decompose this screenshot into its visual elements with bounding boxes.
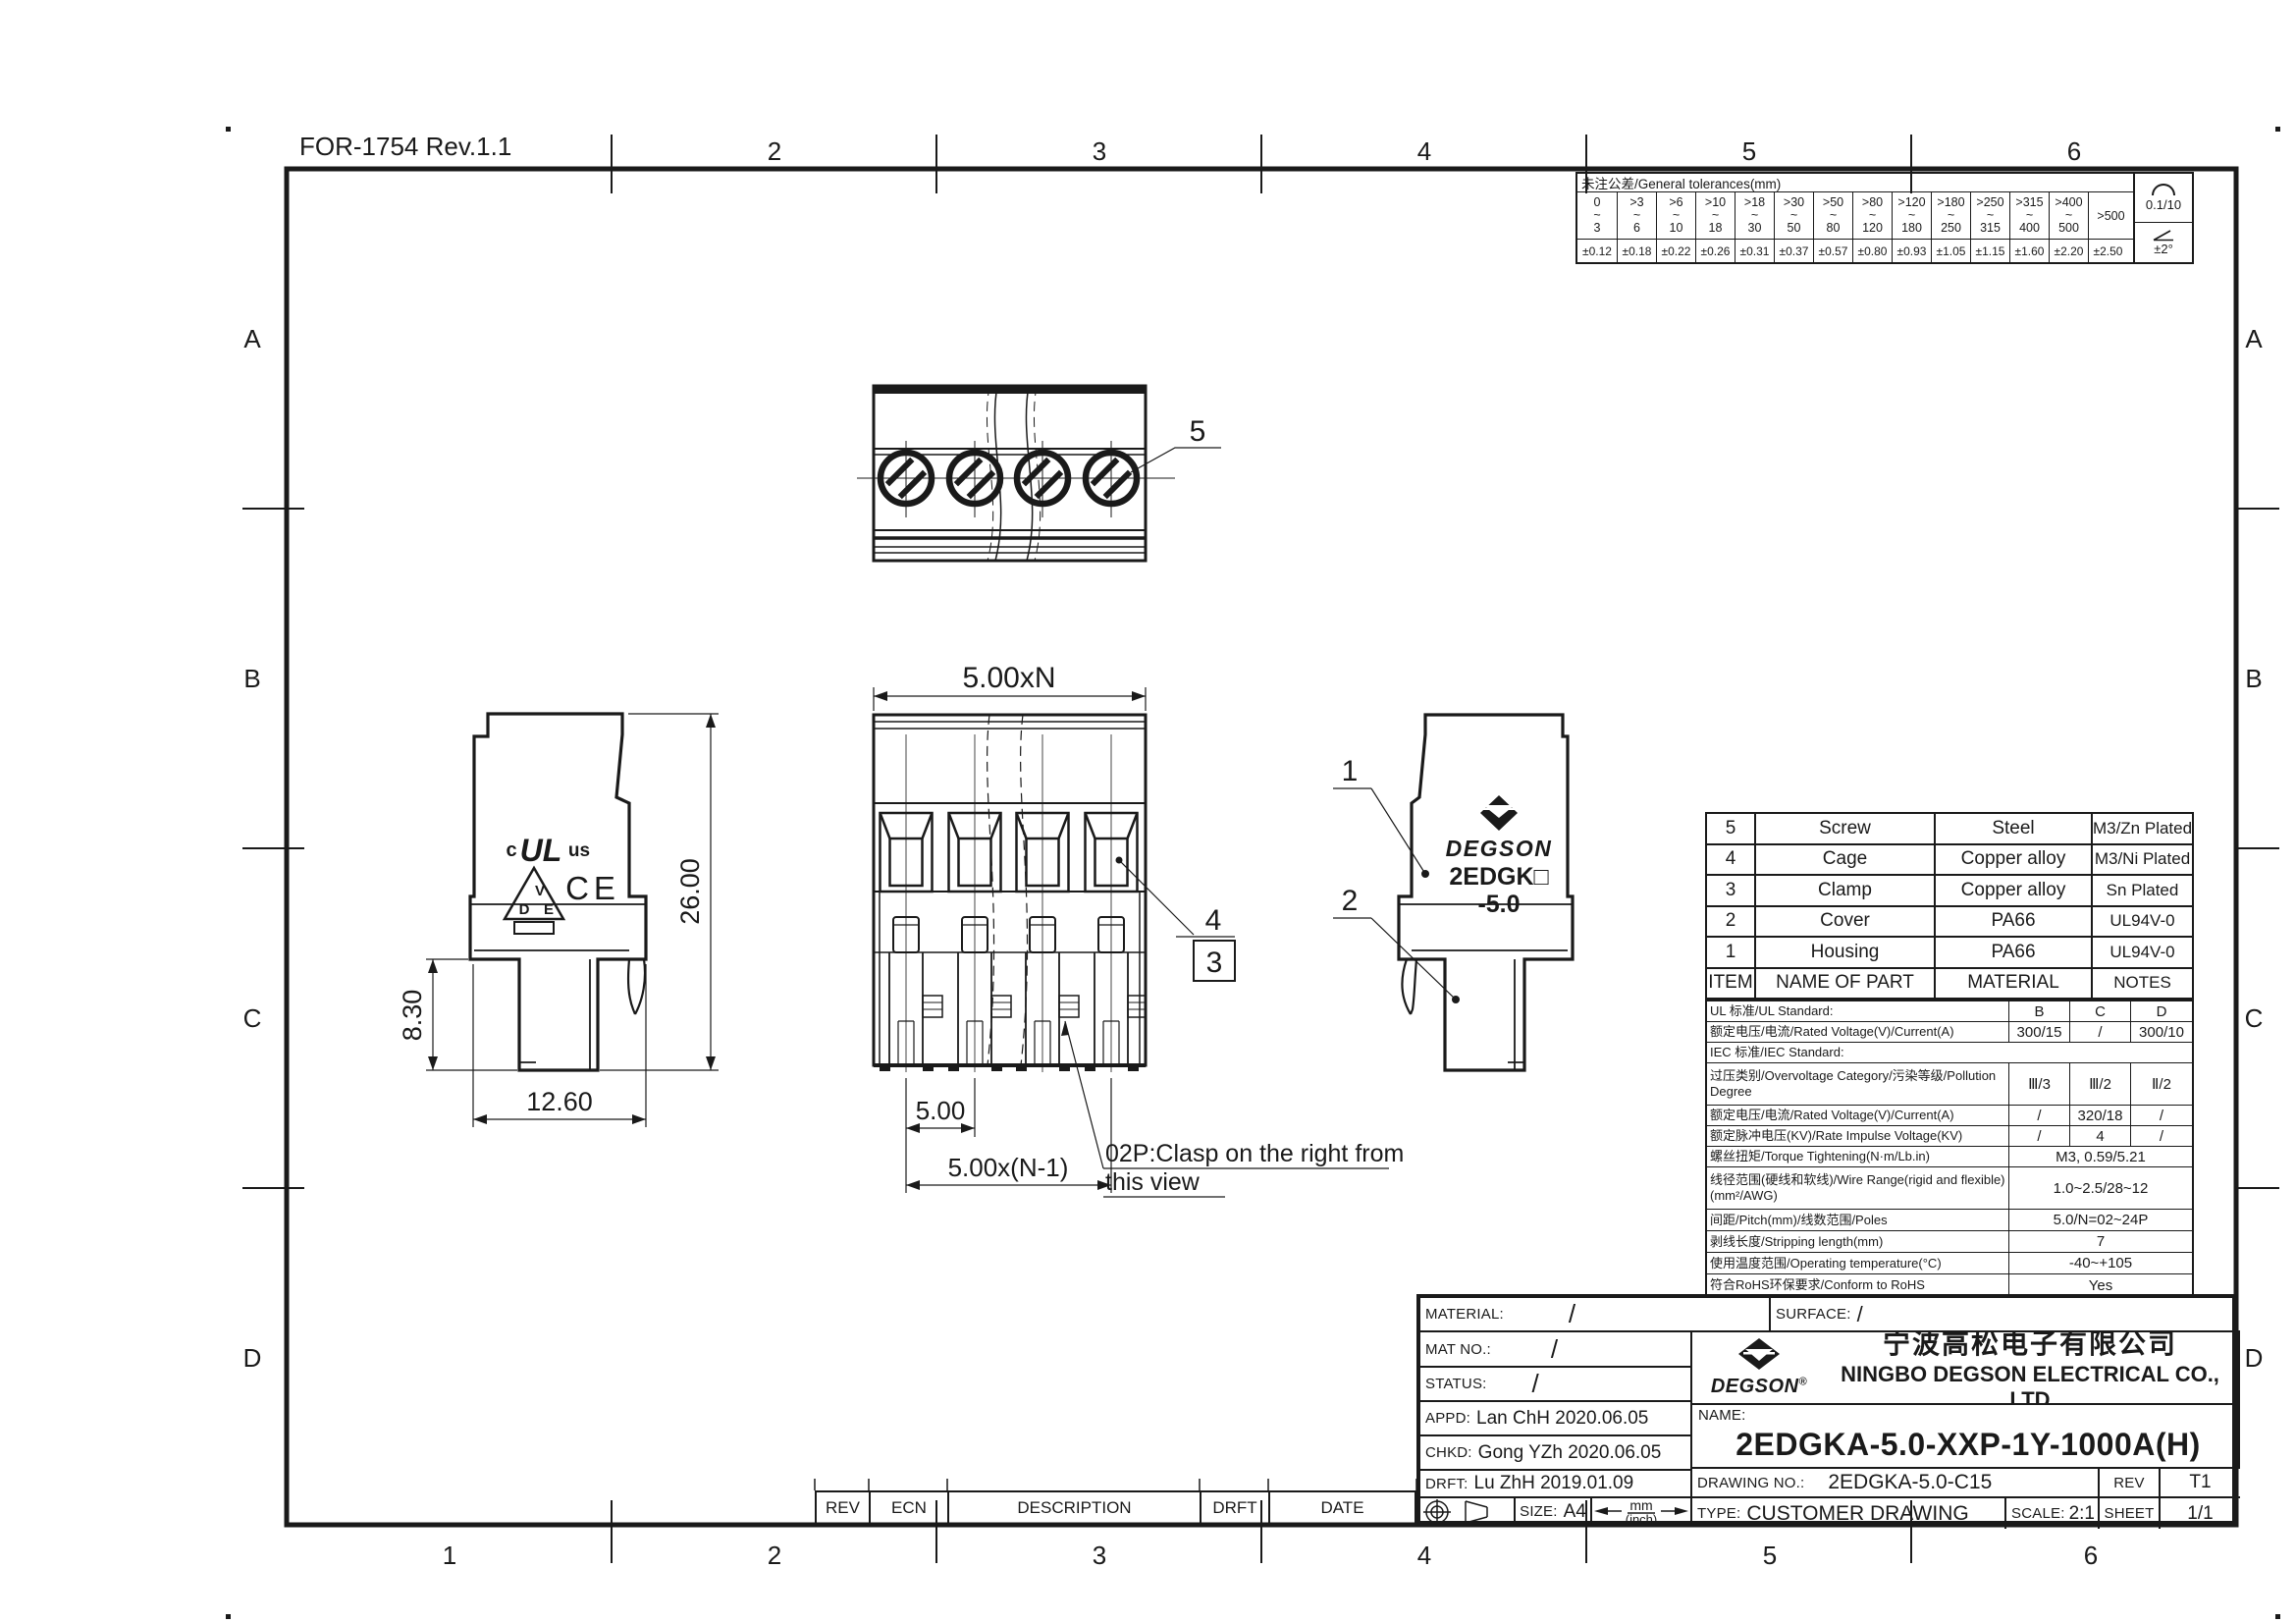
spec-label: 额定电压/电流/Rated Voltage(V)/Current(A) (1707, 1022, 2009, 1042)
spec-value: C (2070, 1001, 2131, 1021)
tolerance-value-cell: ±0.57 (1813, 240, 1852, 262)
spec-label: IEC 标准/IEC Standard: (1707, 1043, 2192, 1062)
spec-value: 300/10 (2131, 1022, 2192, 1042)
col-header: ITEM (1707, 969, 1756, 999)
spec-value: / (2009, 1106, 2070, 1125)
spec-value: -40~+105 (2009, 1253, 2192, 1273)
grid-label: 5 (1763, 1541, 1777, 1570)
sheet-value-cell: 1/1 (2161, 1498, 2240, 1529)
dim-text: 26.00 (675, 858, 705, 925)
spec-value: Yes (2009, 1274, 2192, 1296)
specs-row: 额定电压/电流/Rated Voltage(V)/Current(A) 300/… (1707, 1022, 2192, 1043)
spec-label: 线径范围(硬线和软线)/Wire Range(rigid and flexibl… (1707, 1167, 2009, 1209)
brand-text: DEGSON (1446, 836, 1553, 861)
specs-row: 过压类别/Overvoltage Category/污染等级/Pollution… (1707, 1063, 2192, 1106)
grid-label: 4 (1417, 136, 1431, 166)
svg-text:us: us (568, 840, 590, 861)
part-material: PA66 (1936, 938, 2093, 967)
part-notes: M3/Ni Plated (2093, 845, 2192, 875)
clasp-note: 02P:Clasp on the right from this view (1061, 1021, 1404, 1197)
projection-symbol-cell (1420, 1498, 1516, 1525)
title-block: MATERIAL: / SURFACE: / MAT NO.: / STATUS… (1416, 1294, 2236, 1525)
grid-label: 4 (1417, 1541, 1431, 1570)
company-block: DEGSON® 宁波高松电子有限公司 NINGBO DEGSON ELECTRI… (1692, 1332, 2240, 1405)
ul-mark-icon: c UL us (506, 833, 590, 868)
tolerance-range-cell: >10 ~ 18 (1695, 192, 1735, 239)
front-view: 5.00xN 5.00 5.00x(N-1) 4 (874, 662, 1404, 1197)
parts-table-row: 4 Cage Copper alloy M3/Ni Plated (1707, 845, 2192, 877)
spec-value: M3, 0.59/5.21 (2009, 1147, 2192, 1166)
note-text: 02P:Clasp on the right from (1105, 1140, 1404, 1167)
svg-text:mm: mm (1629, 1499, 1652, 1513)
grid-label: 2 (768, 136, 781, 166)
tolerance-ranges-row: 0 ~ 3 >3 ~ 6 >6 ~ 10 >10 ~ 18 (1577, 192, 2133, 240)
rev-label-cell: REV (2100, 1469, 2161, 1498)
chkd-field: CHKD: Gong YZh 2020.06.05 (1420, 1436, 1692, 1471)
general-tolerance-table: 未注公差/General tolerances(mm) 0 ~ 3 >3 ~ 6… (1575, 172, 2194, 264)
part-notes: UL94V-0 (2093, 907, 2192, 937)
svg-text:E: E (544, 901, 554, 918)
part-number: 2EDGKA-5.0-XXP-1Y-1000A(H) (1698, 1427, 2238, 1463)
tolerance-range-cell: >500 (2088, 192, 2133, 239)
part-notes: UL94V-0 (2093, 938, 2192, 967)
registered-mark: ® (1799, 1376, 1808, 1387)
part-name-cell: NAME: 2EDGKA-5.0-XXP-1Y-1000A(H) (1692, 1405, 2240, 1469)
specs-row: IEC 标准/IEC Standard: (1707, 1043, 2192, 1063)
specs-row: 线径范围(硬线和软线)/Wire Range(rigid and flexibl… (1707, 1167, 2192, 1210)
spec-label: 过压类别/Overvoltage Category/污染等级/Pollution… (1707, 1063, 2009, 1105)
unit-arrows-icon: mm (inch) (1592, 1499, 1690, 1525)
tolerance-value-cell: ±0.18 (1617, 240, 1656, 262)
spec-value: / (2131, 1106, 2192, 1125)
specs-row: 符合RoHS环保要求/Conform to RoHS Yes (1707, 1274, 2192, 1296)
parts-table-header: ITEM NAME OF PART MATERIAL NOTES (1707, 969, 2192, 999)
tolerance-range-cell: >315 ~ 400 (2009, 192, 2049, 239)
tolerance-title: 未注公差/General tolerances(mm) (1577, 174, 2133, 192)
tolerance-value-cell: ±0.22 (1656, 240, 1695, 262)
part-item: 2 (1707, 907, 1756, 937)
tolerance-values-row: ±0.12±0.18±0.22±0.26±0.31±0.37±0.57±0.80… (1577, 240, 2133, 262)
spec-value: Ⅲ/2 (2070, 1063, 2131, 1105)
dim-text: 8.30 (398, 990, 427, 1042)
part-item: 5 (1707, 814, 1756, 843)
parts-table: 5 Screw Steel M3/Zn Plated 4 Cage Copper… (1705, 812, 2194, 1000)
part-material: Steel (1936, 814, 2093, 843)
vde-mark-icon: V D E (505, 868, 563, 934)
part-item: 4 (1707, 845, 1756, 875)
size-field: SIZE: A4 (1516, 1498, 1592, 1525)
spec-label: 剥线长度/Stripping length(mm) (1707, 1231, 2009, 1252)
col-header: NOTES (2093, 969, 2192, 999)
material-field: MATERIAL: / (1420, 1298, 1771, 1332)
tolerance-value-cell: ±0.31 (1735, 240, 1774, 262)
callout-label: 1 (1342, 755, 1359, 787)
tolerance-value-cell: ±1.15 (1970, 240, 2009, 262)
tolerance-range-cell: >6 ~ 10 (1656, 192, 1695, 239)
angle-symbol-icon (2153, 229, 2174, 242)
dim-total-width: 5.00xN (874, 662, 1146, 711)
spec-label: 使用温度范围/Operating temperature(°C) (1707, 1253, 2009, 1273)
spec-value: 4 (2070, 1126, 2131, 1146)
mat-no-field: MAT NO.: / (1420, 1332, 1692, 1368)
rev-value-cell: T1 (2161, 1469, 2240, 1498)
spec-value: B (2009, 1001, 2070, 1021)
grid-label: D (2245, 1343, 2264, 1373)
grid-label: 3 (1093, 1541, 1106, 1570)
spec-label: 符合RoHS环保要求/Conform to RoHS (1707, 1274, 2009, 1296)
degson-logo-icon (1737, 1337, 1781, 1371)
callout-housing: 1 (1333, 755, 1429, 878)
tolerance-value-cell: ±2.20 (2049, 240, 2088, 262)
callout-label: 3 (1206, 947, 1223, 979)
callout-label: 4 (1205, 904, 1222, 937)
grid-label: A (2245, 324, 2263, 353)
specs-row: UL 标准/UL Standard: B C D (1707, 1001, 2192, 1022)
tolerance-range-cell: 0 ~ 3 (1577, 192, 1617, 239)
tolerance-value-cell: ±0.26 (1695, 240, 1735, 262)
svg-text:V: V (535, 883, 545, 899)
spec-label: 额定电压/电流/Rated Voltage(V)/Current(A) (1707, 1106, 2009, 1125)
tolerance-value-cell: ±1.05 (1931, 240, 1970, 262)
part-notes: M3/Zn Plated (2093, 814, 2192, 843)
first-angle-projection-icon (1422, 1499, 1513, 1525)
top-view: 5 (857, 386, 1221, 561)
specs-row: 剥线长度/Stripping length(mm) 7 (1707, 1231, 2192, 1253)
spec-value: 1.0~2.5/28~12 (2009, 1167, 2192, 1209)
parts-table-row: 5 Screw Steel M3/Zn Plated (1707, 814, 2192, 845)
drft-field: DRFT: Lu ZhH 2019.01.09 (1420, 1471, 1692, 1498)
ce-mark-icon: CE (565, 870, 620, 906)
parts-table-row: 3 Clamp Copper alloy Sn Plated (1707, 876, 2192, 907)
pitch-text: -5.0 (1477, 891, 1520, 918)
part-material: PA66 (1936, 907, 2093, 937)
spec-value: 320/18 (2070, 1106, 2131, 1125)
tolerance-range-cell: >80 ~ 120 (1852, 192, 1892, 239)
degson-logo-icon (1480, 795, 1518, 831)
spec-label: 额定脉冲电压(KV)/Rate Impulse Voltage(KV) (1707, 1126, 2009, 1146)
grid-label: C (2245, 1003, 2264, 1033)
specs-table: UL 标准/UL Standard: B C D 额定电压/电流/Rated V… (1705, 1000, 2194, 1298)
part-item: 3 (1707, 876, 1756, 905)
dim-foot-height: 8.30 (398, 959, 517, 1070)
spec-value: 5.0/N=02~24P (2009, 1210, 2192, 1230)
spec-label: 间距/Pitch(mm)/线数范围/Poles (1707, 1210, 2009, 1230)
brand-name: DEGSON (1711, 1376, 1799, 1397)
drawing-no-field: DRAWING NO.: 2EDGKA-5.0-C15 (1692, 1469, 2100, 1498)
part-name: Housing (1756, 938, 1936, 967)
note-text: this view (1105, 1168, 1201, 1196)
revision-strip: REV ECN DESCRIPTION DRFT DATE (815, 1490, 1416, 1525)
tolerance-range-cell: >30 ~ 50 (1774, 192, 1813, 239)
side-view-right: DEGSON 2EDGK□ -5.0 1 2 (1333, 715, 1573, 1070)
part-material: Copper alloy (1936, 845, 2093, 875)
spec-value: 7 (2009, 1231, 2192, 1252)
tolerance-value-cell: ±2.50 (2088, 240, 2127, 262)
flatness-tolerance-cell: 0.1/10 (2135, 174, 2192, 223)
tolerance-range-cell: >18 ~ 30 (1735, 192, 1774, 239)
ecn-col-header: ECN (871, 1492, 949, 1523)
svg-text:UL: UL (520, 833, 562, 868)
callout-cover: 2 (1333, 885, 1460, 1003)
status-field: STATUS: / (1420, 1368, 1692, 1402)
tolerance-range-cell: >120 ~ 180 (1892, 192, 1931, 239)
grid-label: B (243, 664, 260, 693)
spec-value: 300/15 (2009, 1022, 2070, 1042)
grid-label: 6 (2084, 1541, 2098, 1570)
callout-cage-clamp: 4 3 (1116, 857, 1236, 982)
grid-label: 6 (2067, 136, 2081, 166)
grid-label: C (243, 1003, 262, 1033)
description-col-header: DESCRIPTION (949, 1492, 1201, 1523)
company-name-en: NINGBO DEGSON ELECTRICAL CO., LTD (1826, 1362, 2234, 1405)
tolerance-value-cell: ±0.93 (1892, 240, 1931, 262)
grid-label: D (243, 1343, 262, 1373)
drawing-sheet: FOR-1754 Rev.1.1 2 3 4 5 6 1 2 3 4 5 6 A… (0, 0, 2296, 1623)
part-name: Clamp (1756, 876, 1936, 905)
wire-openings (881, 813, 1138, 892)
specs-row: 额定脉冲电压(KV)/Rate Impulse Voltage(KV) / 4 … (1707, 1126, 2192, 1147)
svg-text:c: c (506, 839, 516, 861)
specs-row: 螺丝扭矩/Torque Tightening(N·m/Lb.in) M3, 0.… (1707, 1147, 2192, 1167)
col-header: MATERIAL (1936, 969, 2093, 999)
clasps (923, 996, 1146, 1017)
callout-label: 2 (1342, 885, 1359, 917)
company-name-cn: 宁波高松电子有限公司 (1826, 1332, 2234, 1362)
part-material: Copper alloy (1936, 876, 2093, 905)
grid-label: 5 (1742, 136, 1756, 166)
dim-pitch: 5.00 (906, 1078, 975, 1137)
flatness-symbol-icon (2152, 184, 2175, 195)
spec-value: Ⅲ/3 (2009, 1063, 2070, 1105)
part-notes: Sn Plated (2093, 876, 2192, 905)
type-field: TYPE: CUSTOMER DRAWING (1692, 1498, 2006, 1529)
dim-text: 5.00x(N-1) (948, 1153, 1069, 1182)
spec-value: / (2070, 1022, 2131, 1042)
svg-text:(inch): (inch) (1626, 1512, 1658, 1525)
specs-row: 使用温度范围/Operating temperature(°C) -40~+10… (1707, 1253, 2192, 1274)
part-name: Screw (1756, 814, 1936, 843)
specs-row: 间距/Pitch(mm)/线数范围/Poles 5.0/N=02~24P (1707, 1210, 2192, 1231)
callout-label: 5 (1190, 415, 1206, 448)
parts-table-row: 2 Cover PA66 UL94V-0 (1707, 907, 2192, 939)
part-name: Cover (1756, 907, 1936, 937)
grid-label: A (243, 324, 261, 353)
tolerance-range-cell: >250 ~ 315 (1970, 192, 2009, 239)
date-col-header: DATE (1270, 1492, 1415, 1523)
spec-label: 螺丝扭矩/Torque Tightening(N·m/Lb.in) (1707, 1147, 2009, 1166)
tolerance-value-cell: ±1.60 (2009, 240, 2049, 262)
angle-tolerance-cell: ±2° (2135, 223, 2192, 262)
spec-value: / (2131, 1126, 2192, 1146)
tolerance-range-cell: >3 ~ 6 (1617, 192, 1656, 239)
surface-field: SURFACE: / (1771, 1298, 2240, 1332)
spec-value: / (2009, 1126, 2070, 1146)
sheet-label-cell: SHEET (2100, 1498, 2161, 1529)
drft-col-header: DRFT (1201, 1492, 1270, 1523)
spec-label: UL 标准/UL Standard: (1707, 1001, 2009, 1021)
grid-label: 1 (443, 1541, 456, 1570)
tolerance-value-cell: ±0.12 (1577, 240, 1617, 262)
grid-label: 2 (768, 1541, 781, 1570)
appd-field: APPD: Lan ChH 2020.06.05 (1420, 1402, 1692, 1436)
tolerance-value-cell: ±0.37 (1774, 240, 1813, 262)
tolerance-range-cell: >50 ~ 80 (1813, 192, 1852, 239)
side-view-left: c UL us V D E CE 26.00 (398, 714, 719, 1127)
revision-strip-ticks (815, 1479, 1416, 1490)
dim-text: 5.00xN (962, 662, 1055, 694)
parts-table-row: 1 Housing PA66 UL94V-0 (1707, 938, 2192, 969)
model-text: 2EDGK□ (1449, 863, 1549, 891)
specs-row: 额定电压/电流/Rated Voltage(V)/Current(A) / 32… (1707, 1106, 2192, 1126)
spec-value: Ⅱ/2 (2131, 1063, 2192, 1105)
dim-text: 12.60 (526, 1087, 593, 1116)
spec-value: D (2131, 1001, 2192, 1021)
grid-label: B (2245, 664, 2262, 693)
pins (893, 917, 1124, 952)
grid-label: 3 (1093, 136, 1106, 166)
tolerance-range-cell: >400 ~ 500 (2049, 192, 2088, 239)
rev-col-header: REV (817, 1492, 871, 1523)
form-ref: FOR-1754 Rev.1.1 (299, 132, 511, 161)
units-cell: mm (inch) (1592, 1498, 1692, 1525)
scale-field: SCALE: 2:1 (2006, 1498, 2100, 1529)
col-header: NAME OF PART (1756, 969, 1936, 999)
dim-text: 5.00 (916, 1096, 966, 1125)
svg-text:D: D (519, 901, 530, 918)
part-name: Cage (1756, 845, 1936, 875)
tolerance-range-cell: >180 ~ 250 (1931, 192, 1970, 239)
part-item: 1 (1707, 938, 1756, 967)
tolerance-value-cell: ±0.80 (1852, 240, 1892, 262)
dim-flange-width: 12.60 (473, 964, 646, 1127)
